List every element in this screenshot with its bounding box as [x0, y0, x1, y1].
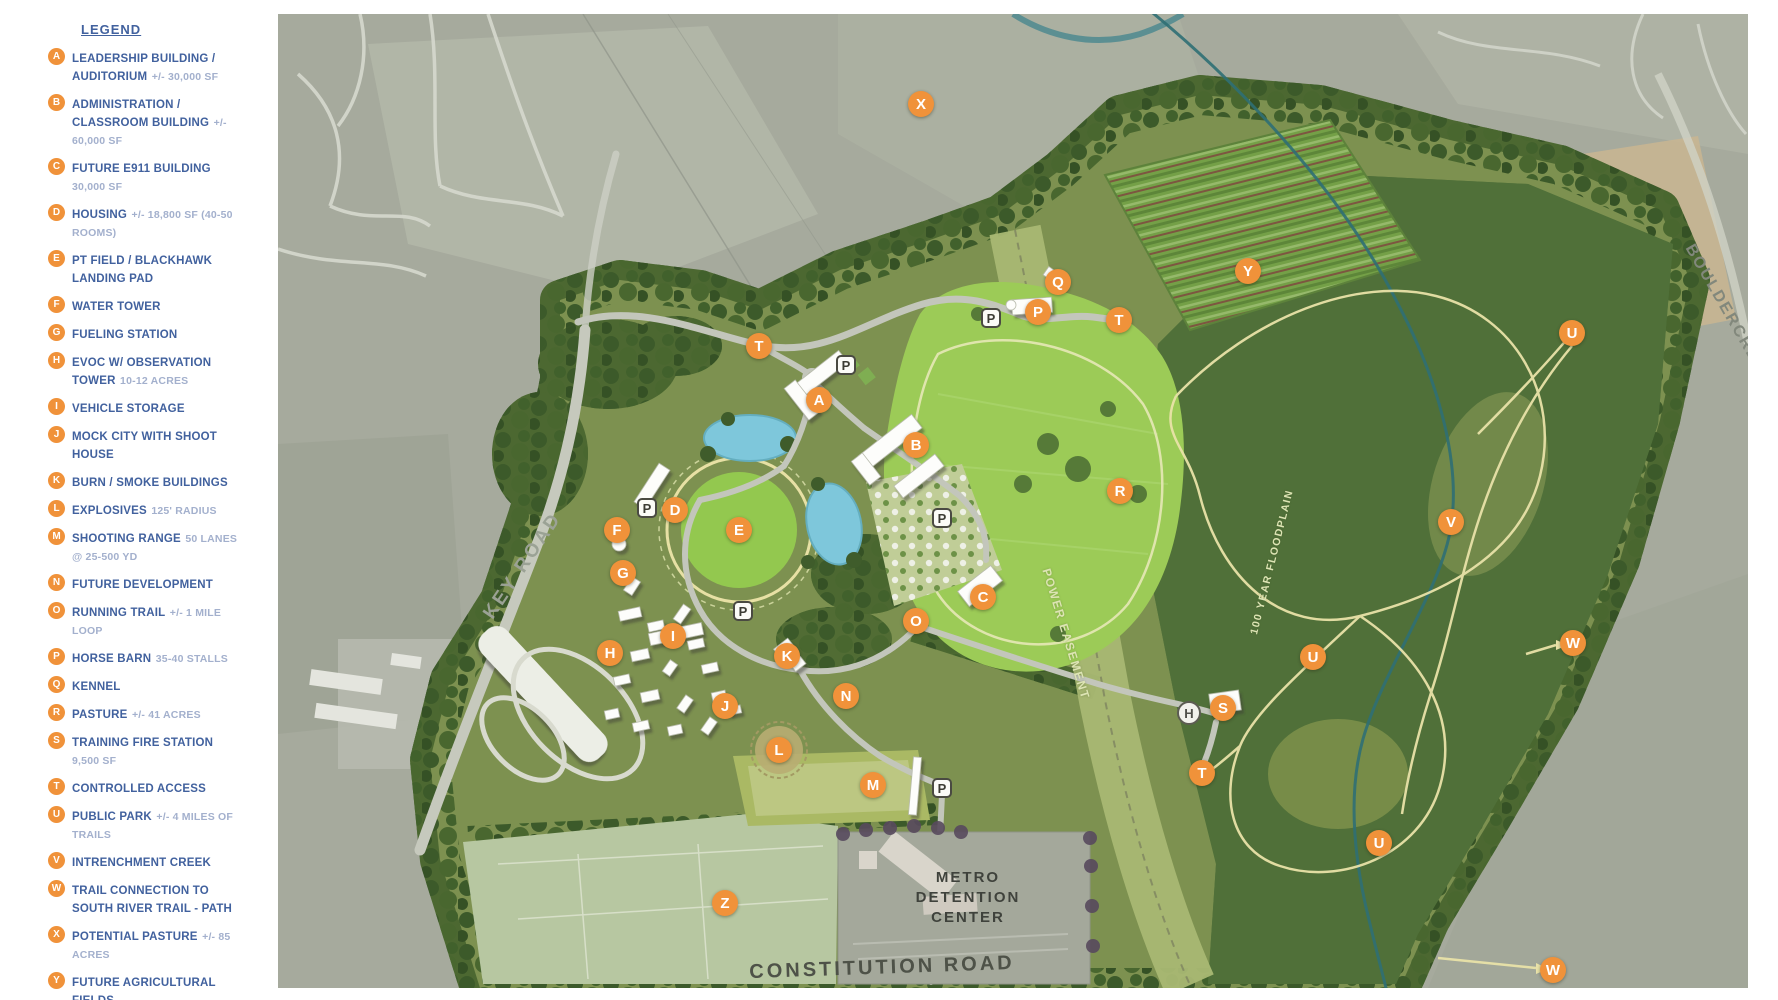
map-marker-w: W	[1560, 630, 1586, 656]
legend-item-sub: 35-40 STALLS	[156, 653, 228, 665]
legend-item-text: POTENTIAL PASTURE +/- 85 ACRES	[72, 927, 240, 963]
parking-badge: P	[932, 508, 952, 528]
legend-item: O RUNNING TRAIL +/- 1 MILE LOOP	[48, 603, 260, 639]
legend-item-label: FUTURE E911 BUILDING	[72, 163, 211, 175]
bouldercrest-road-label: BOULDERCREST	[1681, 241, 1748, 386]
map-overlays: KEY ROADCONSTITUTION ROADMETRO DETENTION…	[278, 14, 1748, 988]
map-marker-t: T	[746, 333, 772, 359]
legend-item-label: TRAIL CONNECTION TO SOUTH RIVER TRAIL - …	[72, 885, 232, 915]
legend-key-badge: Q	[48, 676, 65, 693]
legend-item: L EXPLOSIVES 125' RADIUS	[48, 501, 260, 519]
legend-item: D HOUSING +/- 18,800 SF (40-50 ROOMS)	[48, 205, 260, 241]
legend-item: P HORSE BARN 35-40 STALLS	[48, 649, 260, 667]
legend-item: T CONTROLLED ACCESS	[48, 779, 260, 797]
map-marker-z: Z	[712, 890, 738, 916]
map-marker-e: E	[726, 517, 752, 543]
site-map: KEY ROADCONSTITUTION ROADMETRO DETENTION…	[278, 14, 1748, 988]
legend-item: W TRAIL CONNECTION TO SOUTH RIVER TRAIL …	[48, 881, 260, 917]
legend-item-text: ADMINISTRATION / CLASSROOM BUILDING +/- …	[72, 95, 240, 149]
legend-item: I VEHICLE STORAGE	[48, 399, 260, 417]
legend-item-label: CONTROLLED ACCESS	[72, 783, 206, 795]
legend-item: X POTENTIAL PASTURE +/- 85 ACRES	[48, 927, 260, 963]
map-marker-v: V	[1438, 509, 1464, 535]
legend-item-label: BURN / SMOKE BUILDINGS	[72, 477, 228, 489]
legend-item-text: FUELING STATION	[72, 325, 240, 343]
legend-item-label: FUTURE DEVELOPMENT	[72, 579, 213, 591]
legend-item-text: VEHICLE STORAGE	[72, 399, 240, 417]
legend-item-label: VEHICLE STORAGE	[72, 403, 185, 415]
legend-item-text: HORSE BARN 35-40 STALLS	[72, 649, 240, 667]
legend-item-text: INTRENCHMENT CREEK	[72, 853, 240, 871]
legend-item: V INTRENCHMENT CREEK	[48, 853, 260, 871]
legend-item: R PASTURE +/- 41 ACRES	[48, 705, 260, 723]
map-marker-s: S	[1210, 695, 1236, 721]
legend-item-sub: +/- 41 ACRES	[132, 709, 201, 721]
legend-item: F WATER TOWER	[48, 297, 260, 315]
map-marker-x: X	[908, 91, 934, 117]
legend-item: B ADMINISTRATION / CLASSROOM BUILDING +/…	[48, 95, 260, 149]
legend-item-text: HOUSING +/- 18,800 SF (40-50 ROOMS)	[72, 205, 240, 241]
legend-key-badge: P	[48, 648, 65, 665]
legend-item-label: WATER TOWER	[72, 301, 161, 313]
legend-item: J MOCK CITY WITH SHOOT HOUSE	[48, 427, 260, 463]
metro-detention-center-label: METRO DETENTION CENTER	[916, 868, 1021, 928]
legend-item-sub: 10-12 ACRES	[120, 375, 188, 387]
legend-item-label: PASTURE	[72, 709, 128, 721]
legend-item-text: RUNNING TRAIL +/- 1 MILE LOOP	[72, 603, 240, 639]
legend-key-badge: B	[48, 94, 65, 111]
legend-item: E PT FIELD / BLACKHAWK LANDING PAD	[48, 251, 260, 287]
legend-item-text: EVOC W/ OBSERVATION TOWER 10-12 ACRES	[72, 353, 240, 389]
parking-badge: P	[637, 498, 657, 518]
map-marker-j: J	[712, 693, 738, 719]
legend-item-text: FUTURE AGRICULTURAL FIELDS	[72, 973, 240, 1000]
map-marker-a: A	[806, 387, 832, 413]
legend-panel: LEGEND A LEADERSHIP BUILDING / AUDITORIU…	[48, 22, 260, 1000]
legend-item-text: WATER TOWER	[72, 297, 240, 315]
parking-badge: P	[733, 601, 753, 621]
legend-item-label: HORSE BARN	[72, 653, 151, 665]
legend-item-text: TRAIL CONNECTION TO SOUTH RIVER TRAIL - …	[72, 881, 240, 917]
legend-item: Y FUTURE AGRICULTURAL FIELDS	[48, 973, 260, 1000]
map-marker-i: I	[660, 623, 686, 649]
legend-item-sub: 125' RADIUS	[151, 505, 216, 517]
map-marker-o: O	[903, 608, 929, 634]
legend-item-label: PUBLIC PARK	[72, 811, 152, 823]
legend-item-text: LEADERSHIP BUILDING / AUDITORIUM +/- 30,…	[72, 49, 240, 85]
legend-key-badge: I	[48, 398, 65, 415]
legend-item-label: SHOOTING RANGE	[72, 533, 181, 545]
legend-item: Q KENNEL	[48, 677, 260, 695]
legend-item-text: PUBLIC PARK +/- 4 MILES OF TRAILS	[72, 807, 240, 843]
legend-item-text: BURN / SMOKE BUILDINGS	[72, 473, 240, 491]
map-marker-t: T	[1189, 760, 1215, 786]
parking-badge: P	[981, 308, 1001, 328]
map-marker-u: U	[1366, 830, 1392, 856]
legend-key-badge: H	[48, 352, 65, 369]
legend-item-label: TRAINING FIRE STATION	[72, 737, 213, 749]
map-marker-b: B	[903, 432, 929, 458]
legend-item: N FUTURE DEVELOPMENT	[48, 575, 260, 593]
legend-key-badge: K	[48, 472, 65, 489]
legend-key-badge: J	[48, 426, 65, 443]
map-marker-d: D	[662, 497, 688, 523]
legend-item-text: SHOOTING RANGE 50 LANES @ 25-500 YD	[72, 529, 240, 565]
legend-item: U PUBLIC PARK +/- 4 MILES OF TRAILS	[48, 807, 260, 843]
key-road-label: KEY ROAD	[479, 508, 567, 623]
map-marker-u: U	[1559, 320, 1585, 346]
constitution-road-label: CONSTITUTION ROAD	[749, 952, 1015, 984]
legend-key-badge: M	[48, 528, 65, 545]
legend-item-sub: 9,500 SF	[72, 755, 116, 767]
legend-item-label: RUNNING TRAIL	[72, 607, 165, 619]
legend-key-badge: L	[48, 500, 65, 517]
parking-badge: P	[836, 355, 856, 375]
legend-item-text: FUTURE E911 BUILDING 30,000 SF	[72, 159, 240, 195]
legend-item: S TRAINING FIRE STATION 9,500 SF	[48, 733, 260, 769]
map-marker-n: N	[833, 683, 859, 709]
floodplain-label: 100 YEAR FLOODPLAIN	[1248, 488, 1296, 636]
legend-item-text: KENNEL	[72, 677, 240, 695]
legend-key-badge: V	[48, 852, 65, 869]
legend-item-text: PT FIELD / BLACKHAWK LANDING PAD	[72, 251, 240, 287]
legend-key-badge: O	[48, 602, 65, 619]
map-marker-k: K	[774, 643, 800, 669]
legend-item-label: ADMINISTRATION / CLASSROOM BUILDING	[72, 99, 209, 129]
map-marker-y: Y	[1235, 258, 1261, 284]
legend-list: A LEADERSHIP BUILDING / AUDITORIUM +/- 3…	[48, 49, 260, 1000]
legend-item: H EVOC W/ OBSERVATION TOWER 10-12 ACRES	[48, 353, 260, 389]
map-marker-f: F	[604, 517, 630, 543]
legend-key-badge: N	[48, 574, 65, 591]
map-marker-h: H	[597, 640, 623, 666]
site-plan-page: LEGEND A LEADERSHIP BUILDING / AUDITORIU…	[0, 0, 1778, 1000]
legend-item: M SHOOTING RANGE 50 LANES @ 25-500 YD	[48, 529, 260, 565]
legend-key-badge: Y	[48, 972, 65, 989]
legend-title: LEGEND	[81, 22, 260, 37]
legend-item: K BURN / SMOKE BUILDINGS	[48, 473, 260, 491]
legend-key-badge: C	[48, 158, 65, 175]
map-marker-r: R	[1107, 478, 1133, 504]
legend-item-text: TRAINING FIRE STATION 9,500 SF	[72, 733, 240, 769]
map-marker-g: G	[610, 560, 636, 586]
map-marker-c: C	[970, 584, 996, 610]
map-marker-p: P	[1025, 299, 1051, 325]
legend-key-badge: D	[48, 204, 65, 221]
legend-item-label: INTRENCHMENT CREEK	[72, 857, 211, 869]
legend-item-label: FUTURE AGRICULTURAL FIELDS	[72, 977, 216, 1000]
legend-item-text: PASTURE +/- 41 ACRES	[72, 705, 240, 723]
legend-key-badge: R	[48, 704, 65, 721]
map-marker-t: T	[1106, 307, 1132, 333]
legend-item-label: EXPLOSIVES	[72, 505, 147, 517]
legend-item: A LEADERSHIP BUILDING / AUDITORIUM +/- 3…	[48, 49, 260, 85]
helipad-icon: H	[1177, 701, 1201, 725]
legend-item-text: EXPLOSIVES 125' RADIUS	[72, 501, 240, 519]
legend-key-badge: T	[48, 778, 65, 795]
legend-key-badge: S	[48, 732, 65, 749]
legend-key-badge: U	[48, 806, 65, 823]
map-marker-u: U	[1300, 644, 1326, 670]
legend-key-badge: E	[48, 250, 65, 267]
legend-key-badge: F	[48, 296, 65, 313]
legend-item-text: CONTROLLED ACCESS	[72, 779, 240, 797]
parking-badge: P	[932, 778, 952, 798]
legend-item-label: HOUSING	[72, 209, 127, 221]
legend-key-badge: X	[48, 926, 65, 943]
legend-item-sub: 30,000 SF	[72, 181, 122, 193]
legend-item-label: FUELING STATION	[72, 329, 177, 341]
map-marker-l: L	[766, 737, 792, 763]
legend-key-badge: G	[48, 324, 65, 341]
legend-item-sub: +/- 30,000 SF	[152, 71, 219, 83]
legend-item-text: FUTURE DEVELOPMENT	[72, 575, 240, 593]
legend-item: G FUELING STATION	[48, 325, 260, 343]
legend-item-label: POTENTIAL PASTURE	[72, 931, 198, 943]
legend-item-label: PT FIELD / BLACKHAWK LANDING PAD	[72, 255, 212, 285]
legend-key-badge: W	[48, 880, 65, 897]
legend-key-badge: A	[48, 48, 65, 65]
map-marker-m: M	[860, 772, 886, 798]
legend-item-label: MOCK CITY WITH SHOOT HOUSE	[72, 431, 217, 461]
legend-item-label: KENNEL	[72, 681, 120, 693]
legend-item: C FUTURE E911 BUILDING 30,000 SF	[48, 159, 260, 195]
legend-item-text: MOCK CITY WITH SHOOT HOUSE	[72, 427, 240, 463]
power-easement-label: POWER EASEMENT	[1039, 567, 1092, 701]
map-marker-w: W	[1540, 957, 1566, 983]
map-marker-q: Q	[1045, 269, 1071, 295]
